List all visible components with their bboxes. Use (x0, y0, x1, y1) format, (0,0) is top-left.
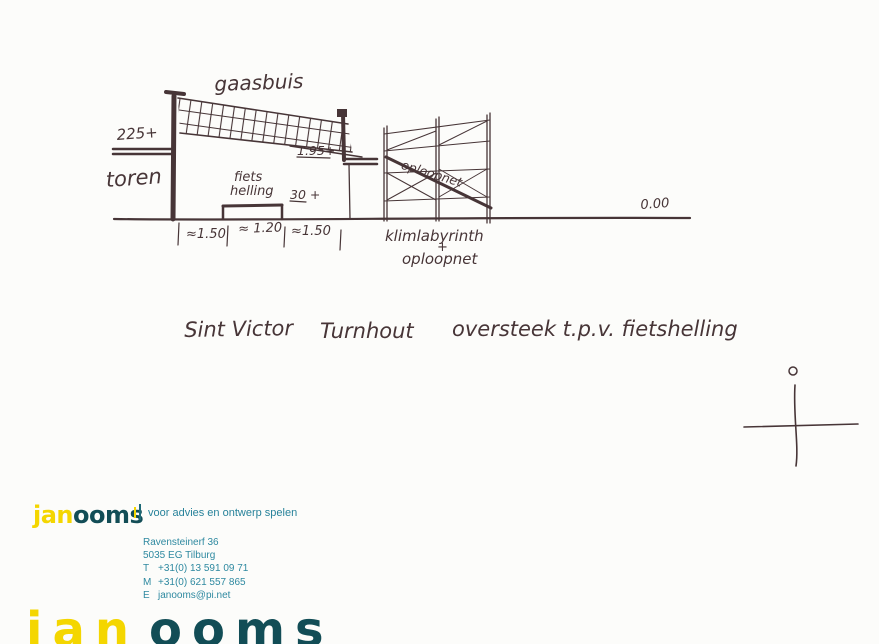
address-street: Ravensteinerf 36 (143, 536, 248, 549)
ramp-height-label: 30 + (290, 187, 320, 202)
address-city: 5035 EG Tilburg (143, 549, 248, 562)
logo-separator-yellow (134, 507, 136, 518)
email-row: E janooms@pi.net (143, 589, 248, 602)
logo-separator-teal (139, 504, 141, 520)
watermark-part-jan: jan (26, 602, 139, 644)
tower-height-label: 225+ (116, 123, 158, 144)
logo-part-jan: jan (33, 501, 73, 529)
caption-project: Sint Victor (184, 316, 293, 342)
email-label: E (143, 589, 158, 602)
bike-ramp (223, 201, 306, 219)
scaffold-label-line1: klimlabyrinth (385, 227, 484, 245)
mobile-label: M (143, 576, 158, 589)
phone-number: +31(0) 13 591 09 71 (158, 562, 248, 575)
logo-part-ooms: ooms (73, 501, 143, 529)
email-address: janooms@pi.net (158, 589, 230, 602)
caption-description: oversteek t.p.v. fietshelling (452, 317, 738, 341)
ground-line (114, 218, 690, 220)
tower-structure (113, 92, 184, 219)
watermark-part-ooms: ooms (149, 602, 334, 644)
net-label: gaasbuis (214, 69, 304, 96)
ramp-label-line1: fiets (234, 170, 262, 185)
cross-mark (744, 367, 858, 466)
scanned-sketch-page: gaasbuis 225+ toren fiets helling 1.95+ … (0, 0, 879, 644)
mobile-number: +31(0) 621 557 865 (158, 576, 246, 589)
caption-city: Turnhout (320, 319, 414, 343)
dimension-right: ≈1.50 (291, 224, 331, 239)
ground-level-label: 0.00 (640, 196, 670, 213)
deck-height-label: 1.95+ (297, 143, 335, 158)
tower-label: toren (105, 164, 162, 192)
scaffold-label-line2: oploopnet (402, 250, 477, 268)
address-block: Ravensteinerf 36 5035 EG Tilburg T +31(0… (143, 536, 248, 602)
dimension-left: ≈1.50 (186, 227, 226, 242)
ramp-label-line2: helling (230, 184, 274, 199)
mobile-row: M +31(0) 621 557 865 (143, 576, 248, 589)
company-tagline: voor advies en ontwerp spelen (148, 507, 297, 519)
phone-row: T +31(0) 13 591 09 71 (143, 562, 248, 575)
phone-label: T (143, 562, 158, 575)
bottom-logo-watermark: janooms (26, 606, 334, 644)
company-logo: janooms (33, 501, 143, 529)
dimension-mid: ≈ 1.20 (238, 220, 282, 237)
